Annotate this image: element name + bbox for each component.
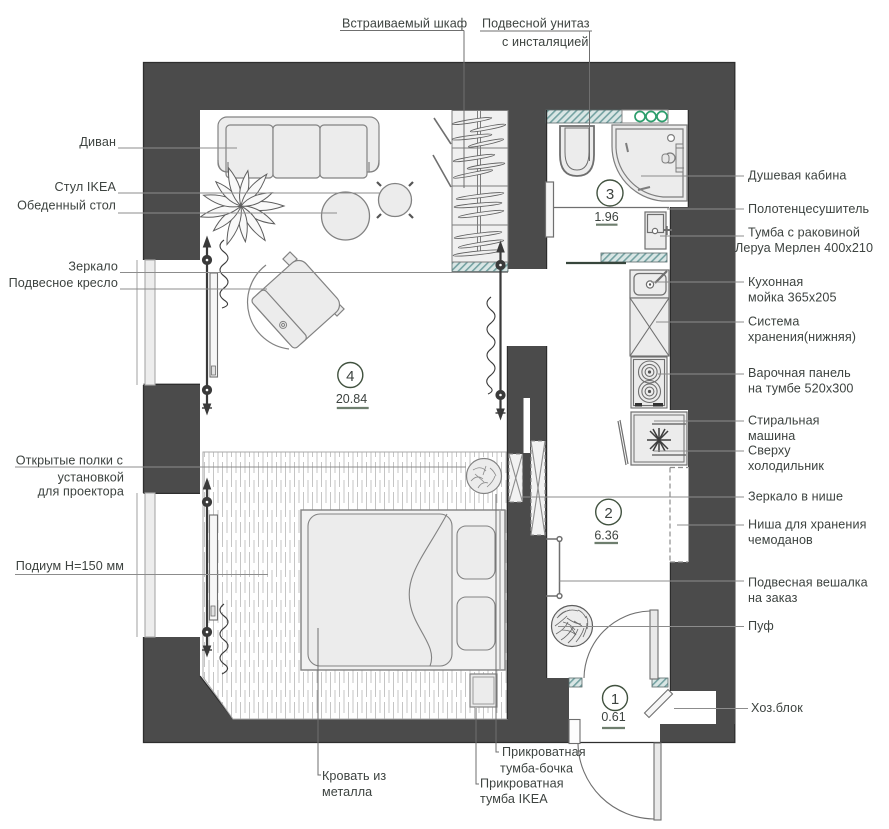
svg-text:Ниша для хранения: Ниша для хранения [748, 518, 867, 532]
svg-text:Система: Система [748, 315, 799, 329]
svg-text:холодильник: холодильник [748, 459, 824, 473]
svg-text:тумба IKEA: тумба IKEA [480, 792, 548, 806]
svg-text:Подвесная вешалка: Подвесная вешалка [748, 576, 868, 590]
svg-text:1: 1 [611, 691, 619, 708]
svg-text:Зеркало в нише: Зеркало в нише [748, 490, 843, 504]
svg-text:машина: машина [748, 429, 795, 443]
svg-text:установкой: установкой [58, 471, 124, 485]
svg-text:Душевая кабина: Душевая кабина [748, 169, 846, 183]
svg-text:хранения(нижняя): хранения(нижняя) [748, 330, 856, 344]
svg-text:Леруа Мерлен 400х210: Леруа Мерлен 400х210 [735, 241, 873, 255]
svg-text:6.36: 6.36 [594, 529, 618, 543]
svg-text:0.61: 0.61 [601, 710, 625, 724]
svg-text:Прикроватная: Прикроватная [502, 745, 586, 759]
svg-text:Сверху: Сверху [748, 444, 791, 458]
svg-text:на тумбе 520х300: на тумбе 520х300 [748, 382, 854, 396]
svg-text:20.84: 20.84 [336, 392, 367, 406]
svg-text:Кухонная: Кухонная [748, 275, 803, 289]
svg-text:Кровать из: Кровать из [322, 769, 386, 783]
svg-text:Диван: Диван [79, 135, 116, 149]
svg-text:2: 2 [604, 505, 612, 522]
svg-text:с инсталяцией: с инсталяцией [502, 35, 588, 49]
svg-text:Прикроватная: Прикроватная [480, 777, 564, 791]
svg-text:Хоз.блок: Хоз.блок [751, 701, 803, 715]
svg-text:Полотенцесушитель: Полотенцесушитель [748, 202, 870, 216]
svg-text:Варочная панель: Варочная панель [748, 366, 851, 380]
svg-text:Открытые полки с: Открытые полки с [16, 454, 123, 468]
svg-text:Стиральная: Стиральная [748, 414, 820, 428]
svg-text:чемоданов: чемоданов [748, 533, 813, 547]
svg-text:для проектора: для проектора [38, 485, 124, 499]
svg-text:Пуф: Пуф [748, 619, 774, 633]
svg-text:мойка 365х205: мойка 365х205 [748, 291, 837, 305]
svg-text:3: 3 [606, 186, 614, 203]
svg-text:тумба-бочка: тумба-бочка [500, 762, 573, 776]
svg-text:Встраиваемый шкаф: Встраиваемый шкаф [342, 17, 467, 31]
svg-text:Обеденный стол: Обеденный стол [17, 199, 116, 213]
svg-text:Подвесной унитаз: Подвесной унитаз [482, 17, 590, 31]
svg-text:Зеркало: Зеркало [68, 260, 118, 274]
svg-text:1.96: 1.96 [594, 210, 618, 224]
svg-text:металла: металла [322, 785, 372, 799]
svg-text:Подиум H=150 мм: Подиум H=150 мм [16, 559, 124, 573]
svg-text:Тумба с раковиной: Тумба с раковиной [748, 226, 860, 240]
svg-text:на заказ: на заказ [748, 591, 798, 605]
svg-text:Стул IKEA: Стул IKEA [55, 180, 117, 194]
svg-text:Подвесное кресло: Подвесное кресло [9, 276, 118, 290]
svg-text:4: 4 [346, 368, 354, 385]
